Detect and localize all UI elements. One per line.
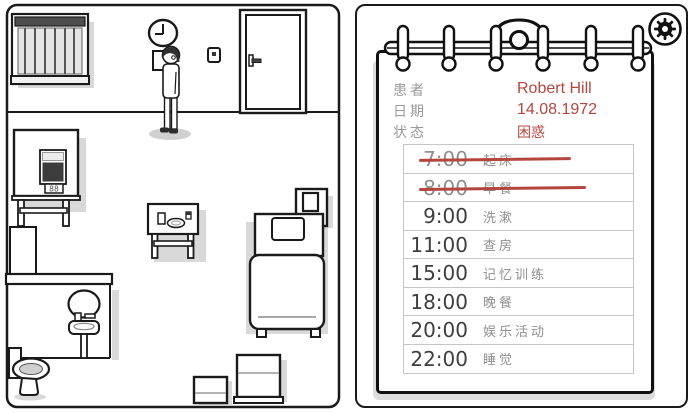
activity-cell: 记忆训练 <box>483 264 547 283</box>
schedule-row: 11:00 查房 <box>403 230 634 260</box>
large-box <box>237 355 280 397</box>
time-cell: 18:00 <box>404 290 468 314</box>
schedule-row: 22:00 睡觉 <box>403 344 634 374</box>
schedule-row: 9:00 洗漱 <box>403 201 634 231</box>
barred-window[interactable] <box>11 14 94 88</box>
tv-display: 88 <box>49 185 59 194</box>
door[interactable] <box>240 10 306 113</box>
plate <box>168 219 185 228</box>
activity-cell: 晚餐 <box>483 292 515 311</box>
time-cell: 9:00 <box>404 204 468 228</box>
time-cell: 11:00 <box>404 233 468 257</box>
ear <box>172 56 176 60</box>
small-box <box>194 377 227 403</box>
cup <box>158 213 165 224</box>
partition-column <box>10 227 36 276</box>
schedule-row: 15:00 记忆训练 <box>403 258 634 288</box>
food-table[interactable] <box>148 204 206 262</box>
schedule-row: 7:00 起床 <box>403 144 634 174</box>
binder-rings <box>371 14 673 86</box>
light-switch[interactable] <box>208 48 220 62</box>
date-label: 日期 <box>393 103 427 119</box>
activity-cell: 睡觉 <box>483 349 515 368</box>
time-cell: 20:00 <box>404 318 468 342</box>
activity-cell: 查房 <box>483 235 515 254</box>
partition-counter <box>6 274 112 284</box>
patient-name: Robert Hill <box>517 80 592 98</box>
time-cell: 22:00 <box>404 347 468 371</box>
date-value: 14.08.1972 <box>517 101 597 119</box>
schedule-table: 7:00 起床 8:00 早餐 9:00 洗漱 11:00 查房 15:00 <box>403 144 635 374</box>
window-blind <box>15 17 85 26</box>
tv-unit[interactable]: 88 <box>12 130 86 226</box>
tv-screen <box>43 163 64 182</box>
time-cell: 15:00 <box>404 261 468 285</box>
game-screen: 88 <box>0 0 691 413</box>
window-sill <box>11 76 89 84</box>
activity-cell: 洗漱 <box>483 207 515 226</box>
wall-clock[interactable] <box>149 20 177 46</box>
shoe <box>160 128 169 133</box>
status-label: 状态 <box>393 124 427 140</box>
schedule-row: 20:00 娱乐活动 <box>403 315 634 345</box>
room-scene: 88 <box>0 0 346 413</box>
clipboard-panel: 患者 Robert Hill 日期 14.08.1972 状态 困惑 7:00 … <box>355 4 688 408</box>
schedule-row: 8:00 早餐 <box>403 173 634 203</box>
patient-label: 患者 <box>393 82 427 98</box>
status-value: 困惑 <box>517 122 545 142</box>
shoe <box>169 129 178 134</box>
activity-cell: 娱乐活动 <box>483 321 547 340</box>
schedule-row: 18:00 晚餐 <box>403 287 634 317</box>
pillow <box>272 218 304 240</box>
blanket <box>250 255 324 329</box>
